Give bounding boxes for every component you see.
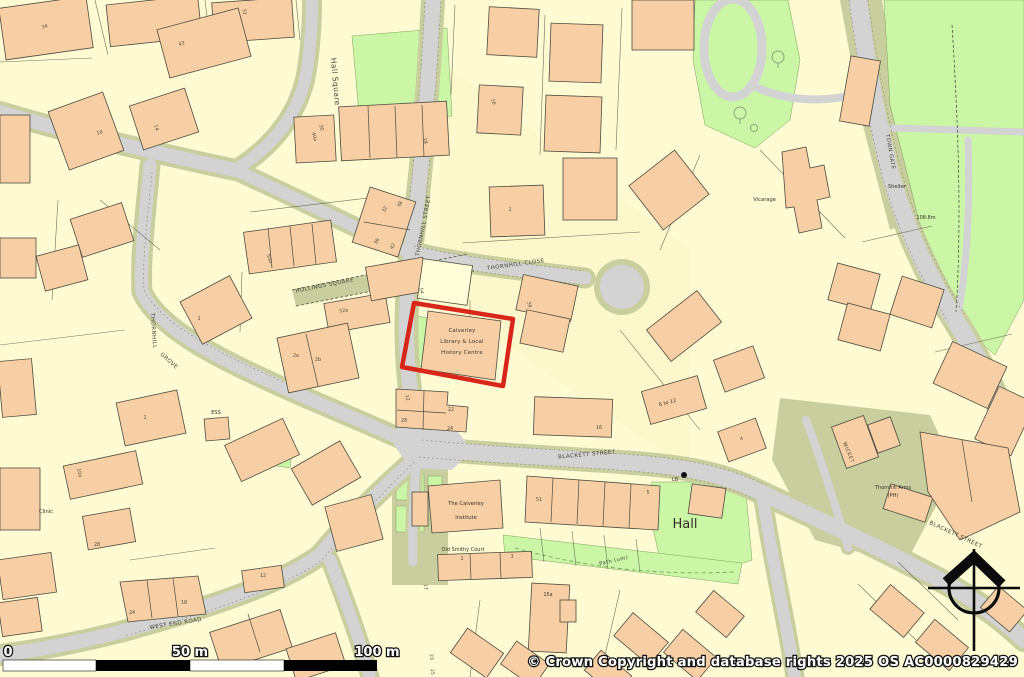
house-number: 5 <box>646 490 649 496</box>
place-label: Shelter <box>888 184 907 190</box>
place-label: Vicarage <box>753 197 776 203</box>
house-number: 12 <box>260 573 266 579</box>
house-number: 24 <box>447 426 453 432</box>
place-label: 15a <box>543 592 552 598</box>
place-label: (PH) <box>888 493 899 499</box>
house-number: 25 <box>429 669 436 676</box>
house-number: 1 <box>508 207 511 213</box>
scale-label-100m: 100 m <box>354 645 399 660</box>
house-number: 16 <box>596 425 602 431</box>
place-label: The Calverley <box>447 501 484 507</box>
library-label-line1: Calverley <box>448 328 476 334</box>
house-number: 1 <box>197 316 200 322</box>
place-label: Thornhill Arms <box>874 485 912 491</box>
place-label: LB <box>672 477 678 483</box>
clinic-building <box>0 468 40 530</box>
attribution-text: © Crown Copyright and database rights 20… <box>527 655 1018 670</box>
place-label: ESS <box>211 410 221 416</box>
house-number: 18 <box>421 137 428 144</box>
house-number: 1 <box>460 556 463 562</box>
place-label: Clinic <box>39 509 53 515</box>
house-number: 24 <box>129 610 135 616</box>
map-viewport: Calverley Library & Local History Centre… <box>0 0 1024 677</box>
house-number: 18 <box>181 600 187 606</box>
library-building <box>421 311 501 380</box>
house-number: 3 <box>510 554 513 560</box>
place-label: Institute <box>455 515 477 521</box>
place-label: 108.8m <box>916 215 935 221</box>
house-number: 51 <box>536 497 542 503</box>
library-label-line3: History Centre <box>441 350 483 356</box>
house-number: 22 <box>448 407 454 413</box>
hall-label: Hall <box>673 517 698 532</box>
house-number: 2b <box>315 357 321 363</box>
scale-label-50m: 50 m <box>172 645 208 660</box>
letter-box-dot <box>681 472 687 478</box>
house-number: 2a <box>293 353 299 359</box>
house-number: 23 <box>428 654 435 661</box>
house-number: 54 <box>417 287 424 294</box>
house-number: 31 <box>240 8 247 15</box>
house-number: 12 <box>403 394 410 401</box>
house-number: 28 <box>401 418 407 424</box>
map-canvas[interactable]: Calverley Library & Local History Centre… <box>0 0 1024 677</box>
house-number: 1 <box>143 415 146 421</box>
scale-label-0: 0 <box>3 645 12 660</box>
place-label: Old Smithy Court <box>442 547 485 553</box>
library-label-line2: Library & Local <box>440 339 483 345</box>
house-number: 28 <box>94 542 100 548</box>
house-number: 17 <box>422 584 429 591</box>
